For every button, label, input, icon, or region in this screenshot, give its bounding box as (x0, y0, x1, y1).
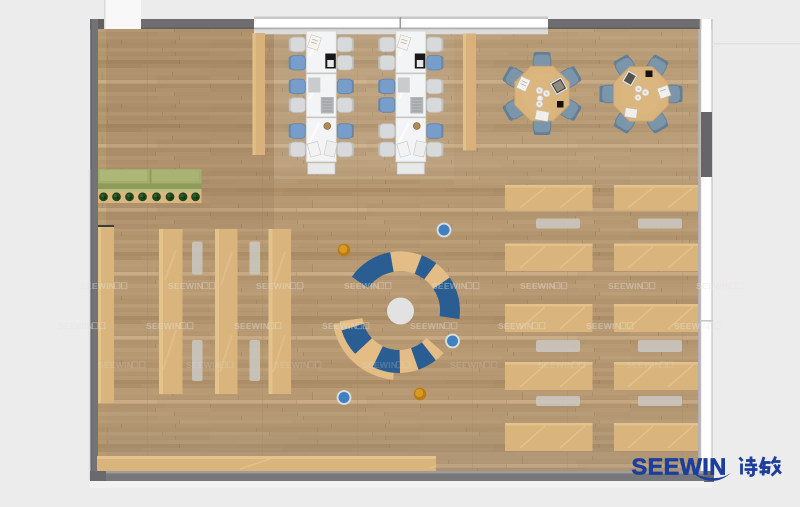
svg-text:SEEWIN: SEEWIN (168, 281, 203, 291)
svg-text:SEEWIN: SEEWIN (234, 321, 269, 331)
svg-text:SEEWIN: SEEWIN (450, 360, 485, 370)
svg-text:SEEWIN: SEEWIN (256, 281, 291, 291)
svg-text:SEEWIN: SEEWIN (274, 360, 309, 370)
svg-text:SEEWIN: SEEWIN (696, 281, 731, 291)
svg-text:SEEWIN: SEEWIN (186, 360, 221, 370)
svg-text:SEEWIN: SEEWIN (432, 281, 467, 291)
svg-text:SEEWIN: SEEWIN (632, 454, 727, 480)
svg-text:SEEWIN: SEEWIN (520, 281, 555, 291)
svg-text:SEEWIN: SEEWIN (410, 321, 445, 331)
svg-text:SEEWIN: SEEWIN (322, 321, 357, 331)
svg-text:SEEWIN: SEEWIN (344, 281, 379, 291)
svg-text:SEEWIN: SEEWIN (674, 321, 709, 331)
svg-text:SEEWIN: SEEWIN (146, 321, 181, 331)
svg-text:SEEWIN: SEEWIN (362, 360, 397, 370)
svg-text:SEEWIN: SEEWIN (498, 321, 533, 331)
svg-text:SEEWIN: SEEWIN (626, 360, 661, 370)
svg-text:SEEWIN: SEEWIN (98, 360, 133, 370)
svg-text:SEEWIN: SEEWIN (608, 281, 643, 291)
svg-text:SEEWIN: SEEWIN (586, 321, 621, 331)
svg-text:SEEWIN: SEEWIN (80, 281, 115, 291)
svg-text:SEEWIN: SEEWIN (58, 321, 93, 331)
svg-text:SEEWIN: SEEWIN (538, 360, 573, 370)
